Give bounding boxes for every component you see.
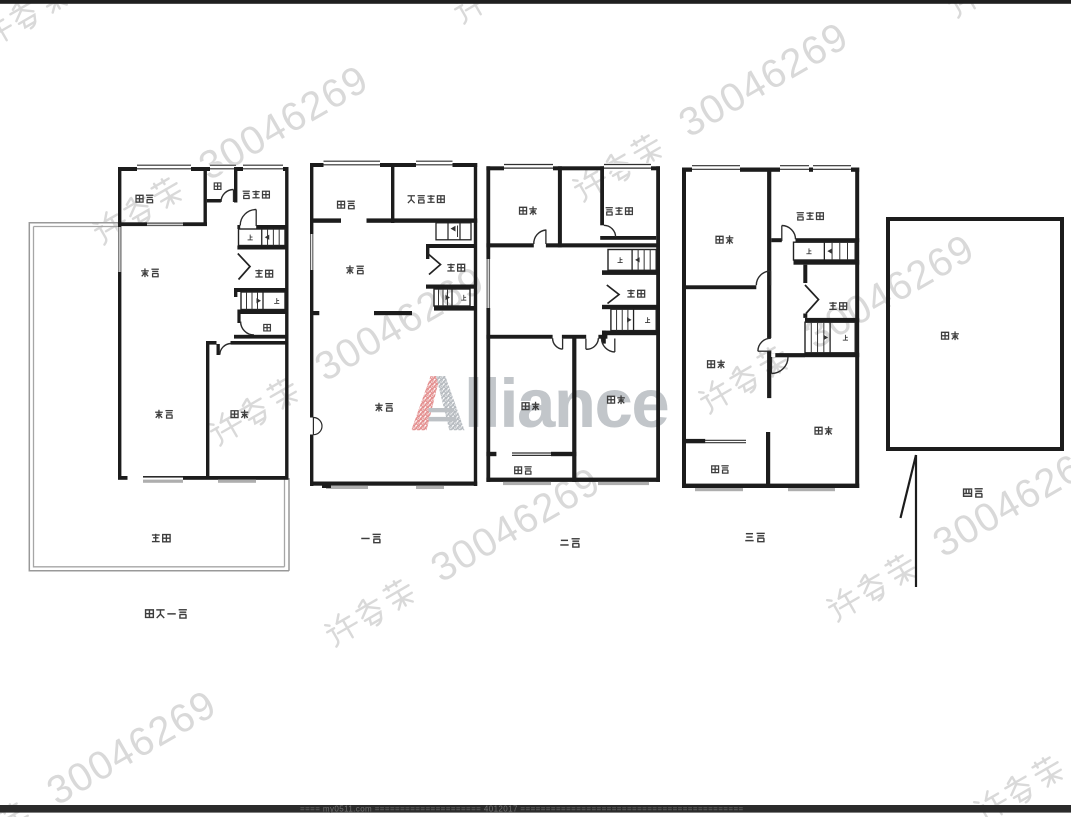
- svg-text:==== my0511.com ==============: ==== my0511.com ===================== 40…: [300, 805, 744, 814]
- svg-text:lliance: lliance: [464, 365, 668, 442]
